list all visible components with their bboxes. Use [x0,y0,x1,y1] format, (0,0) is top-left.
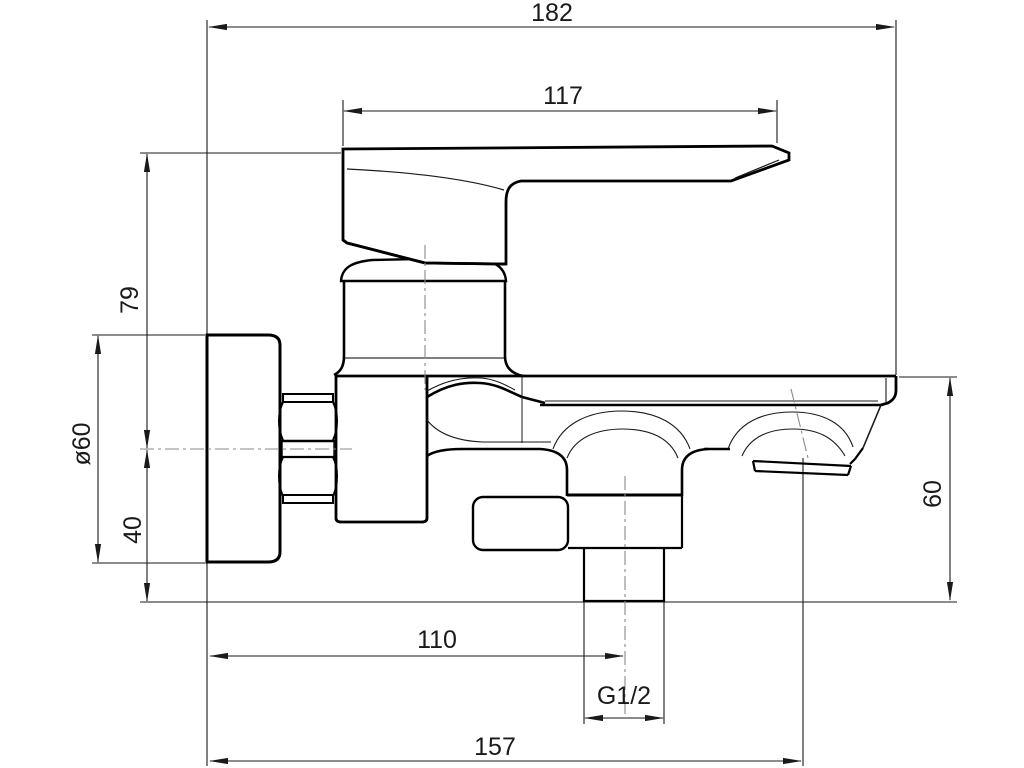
dim-label-60: 60 [919,480,947,508]
dim-label-40: 40 [119,516,147,544]
dim-label-d60: ø60 [68,422,96,465]
housing-left-fillet [540,449,567,496]
cartridge-collar [334,282,525,376]
dimension-labels: 182 117 79 ø60 40 60 110 G1/2 157 [68,0,947,761]
underside-shelf [427,449,540,456]
dim-label-157: 157 [474,733,516,761]
dim-label-G12: G1/2 [597,682,651,710]
housing-right-fillet [682,449,708,496]
spout-neck-curve [427,383,545,403]
mixer-body [336,374,896,522]
dim-label-79: 79 [116,286,144,314]
underside-fillet-inner [427,420,551,442]
underside-arch-2-inner [742,429,845,456]
spout [427,376,896,496]
technical-drawing-page: 182 117 79 ø60 40 60 110 G1/2 157 [0,0,1024,768]
dim-label-110: 110 [417,626,457,654]
dim-label-117: 117 [543,82,583,110]
underside-arch-1-outer [553,411,690,449]
faucet-technical-drawing: 182 117 79 ø60 40 60 110 G1/2 157 [0,0,1024,768]
lever-handle [343,146,789,264]
diverter-knob [473,497,568,550]
aerator [753,448,863,475]
spout-tip-slant [863,405,881,448]
aerator-centerline [791,389,808,458]
underside-arch-2-outer [728,412,853,449]
underside-arch-1-inner [567,429,678,458]
dim-label-182: 182 [531,0,573,27]
outlet-stub [584,548,664,601]
